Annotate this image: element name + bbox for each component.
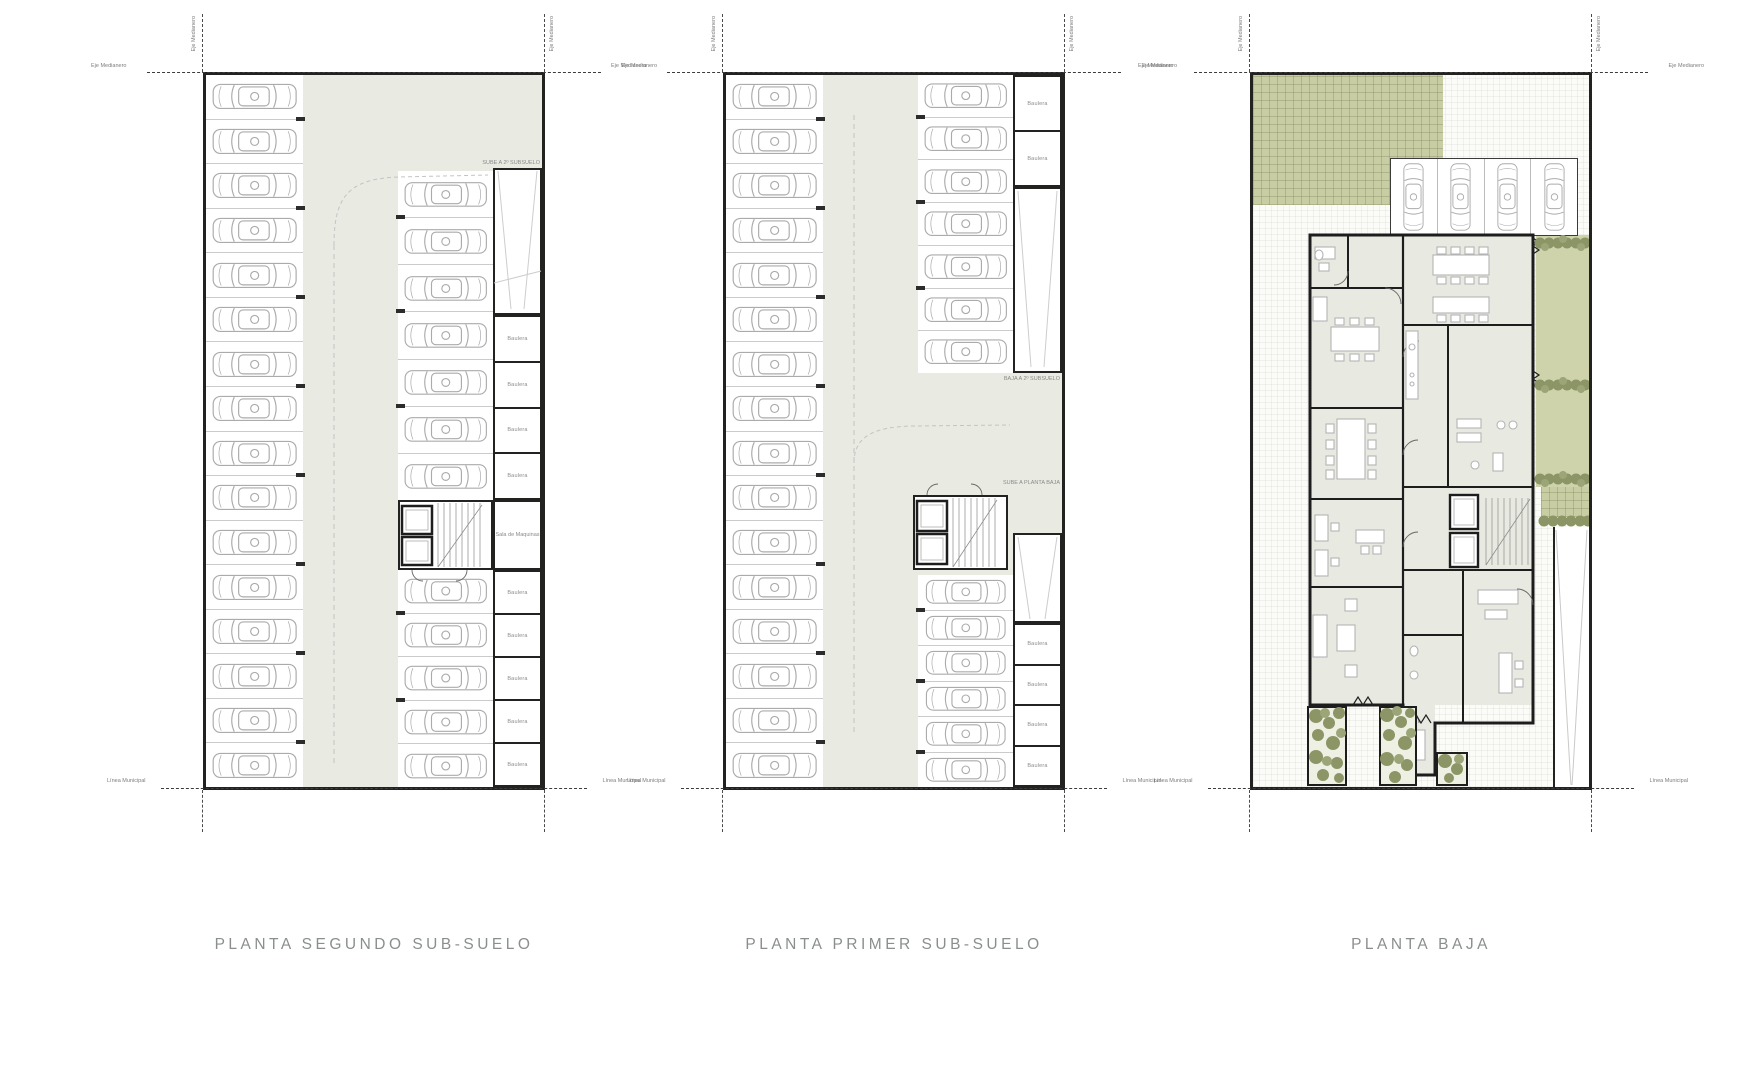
parking-stall (918, 645, 1013, 681)
car-top-view-icon (211, 703, 298, 738)
parking-stall (918, 575, 1013, 610)
drawing-sheet: Eje Medianero Eje Medianero Eje Medianer… (0, 0, 1740, 1080)
municipal-line (681, 788, 1107, 789)
storage-room: Baulera (495, 656, 540, 699)
car-top-view-icon (211, 480, 298, 515)
car-top-view-icon (403, 458, 489, 495)
plan2-elevator-core (913, 495, 1008, 570)
parking-stall (1484, 159, 1531, 235)
parking-stall (726, 75, 823, 119)
municipal-line-label: Línea Municipal (1649, 778, 1688, 784)
car-top-view-icon (403, 364, 489, 401)
parking-stall (206, 297, 303, 342)
plan3-parking-row (1390, 158, 1578, 236)
property-axis-line-right (1064, 14, 1065, 72)
plan1-parking-right-bottom (398, 570, 493, 787)
car-top-view-icon (211, 302, 298, 337)
car-top-view-icon (403, 574, 489, 608)
car-top-view-icon (923, 293, 1009, 326)
plan2-parking-right-bottom (918, 575, 1013, 787)
storage-room: Baulera (495, 407, 540, 453)
car-top-view-icon (211, 213, 298, 248)
parking-stall (206, 386, 303, 431)
municipal-line-label: Línea Municipal (627, 778, 666, 784)
storage-room-label: Baulera (507, 473, 527, 479)
car-top-view-icon (211, 748, 298, 783)
parking-stall (918, 330, 1013, 373)
storage-room: Baulera (495, 317, 540, 361)
car-top-view-icon (923, 207, 1009, 240)
parking-stall (206, 163, 303, 208)
property-axis-line-left (202, 14, 203, 72)
plan-primer-subsuelo: Eje Medianero Eje Medianero Eje Medianer… (723, 72, 1065, 790)
property-axis-label: Eje Medianero (1669, 63, 1704, 69)
parking-stall (918, 159, 1013, 202)
plan1-storage-top: BauleraBauleraBauleraBaulera (493, 315, 542, 500)
storage-room-label: Baulera (1027, 722, 1047, 728)
parking-stall (918, 245, 1013, 288)
parking-stall (398, 453, 493, 500)
parking-stall (726, 119, 823, 164)
car-top-view-icon (923, 79, 1009, 112)
parking-stall (918, 117, 1013, 160)
parking-stall (726, 386, 823, 431)
plan2-storage-bottom: BauleraBauleraBauleraBaulera (1013, 623, 1062, 787)
parking-stall (206, 208, 303, 253)
parking-stall (726, 431, 823, 476)
ramp-up-label: SUBE A 2º SUBSUELO (482, 160, 540, 166)
storage-room-label: Baulera (507, 336, 527, 342)
parking-stall (206, 609, 303, 654)
parking-stall (398, 570, 493, 613)
parking-stall (206, 698, 303, 743)
property-axis-label: Eje Medianero (549, 16, 555, 51)
car-top-view-icon (211, 347, 298, 382)
parking-stall (206, 341, 303, 386)
plan2-parking-left-column (726, 75, 823, 787)
plan2-storage-top: BauleraBaulera (1013, 75, 1062, 187)
parking-stall (206, 431, 303, 476)
parking-stall (398, 656, 493, 700)
car-top-view-icon (923, 165, 1009, 198)
plan2-floor: BauleraBaulera BAJA A 2º SUBSUELO SUBE A… (723, 72, 1065, 790)
parking-stall (726, 653, 823, 698)
plan-segundo-subsuelo: Eje Medianero Eje Medianero Eje Medianer… (203, 72, 545, 790)
property-axis-label: Eje Medianero (1238, 16, 1244, 51)
car-top-view-icon (211, 436, 298, 471)
municipal-tick-right (1064, 790, 1065, 832)
storage-room: Baulera (1015, 130, 1060, 185)
car-top-view-icon (403, 705, 489, 739)
plan3-green-patch (1541, 487, 1589, 517)
property-axis-line-top (667, 72, 1121, 73)
parking-stall (398, 217, 493, 264)
plan1-parking-right-top (398, 171, 493, 500)
car-top-view-icon (211, 525, 298, 560)
municipal-tick-left (722, 790, 723, 832)
municipal-tick-right (1591, 790, 1592, 832)
car-top-view-icon (403, 176, 489, 213)
plan1-machine-room: Sala de Maquinas (493, 500, 542, 570)
parking-stall (918, 681, 1013, 717)
storage-room: Baulera (1015, 625, 1060, 664)
parking-stall (918, 75, 1013, 117)
car-top-view-icon (731, 258, 818, 293)
storage-room-label: Baulera (507, 633, 527, 639)
storage-room: Baulera (495, 452, 540, 498)
parking-stall (918, 288, 1013, 331)
storage-room: Baulera (495, 613, 540, 656)
parking-stall (726, 252, 823, 297)
plan2-ramp-down (1013, 187, 1062, 373)
parking-stall (206, 75, 303, 119)
parking-stall (726, 742, 823, 787)
storage-room-label: Baulera (1027, 763, 1047, 769)
storage-room: Baulera (1015, 745, 1060, 786)
property-axis-label: Eje Medianero (711, 16, 717, 51)
parking-stall (918, 716, 1013, 752)
plan3-lot (1250, 72, 1592, 790)
plan2-parking-right-top (918, 75, 1013, 373)
car-top-view-icon (1397, 162, 1430, 232)
storage-room-label: Baulera (1027, 682, 1047, 688)
car-top-view-icon (1491, 162, 1524, 232)
plan1-elevator-core (398, 500, 493, 570)
municipal-line (1208, 788, 1634, 789)
car-top-view-icon (923, 649, 1009, 677)
parking-stall (726, 475, 823, 520)
car-top-view-icon (923, 578, 1009, 606)
parking-stall (206, 475, 303, 520)
car-top-view-icon (731, 302, 818, 337)
car-top-view-icon (403, 317, 489, 354)
parking-stall (398, 700, 493, 744)
municipal-tick-right (544, 790, 545, 832)
car-top-view-icon (923, 122, 1009, 155)
storage-room: Baulera (495, 742, 540, 785)
property-axis-line-left (1249, 14, 1250, 72)
parking-stall (726, 163, 823, 208)
car-top-view-icon (403, 618, 489, 652)
property-axis-label: Eje Medianero (91, 63, 126, 69)
property-axis-line-left (722, 14, 723, 72)
car-top-view-icon (731, 748, 818, 783)
car-top-view-icon (211, 168, 298, 203)
storage-room-label: Baulera (1027, 641, 1047, 647)
car-top-view-icon (211, 659, 298, 694)
plan1-title: PLANTA SEGUNDO SUB-SUELO (215, 936, 534, 954)
storage-room-label: Baulera (507, 762, 527, 768)
storage-room: Baulera (1015, 704, 1060, 745)
car-top-view-icon (923, 250, 1009, 283)
car-top-view-icon (923, 335, 1009, 368)
plan3-ramp (1553, 527, 1589, 787)
property-axis-label: Eje Medianero (1596, 16, 1602, 51)
car-top-view-icon (211, 614, 298, 649)
parking-stall (918, 202, 1013, 245)
car-top-view-icon (211, 124, 298, 159)
plan3-building-extension (1403, 705, 1435, 775)
parking-stall (206, 119, 303, 164)
parking-stall (918, 752, 1013, 788)
plan-planta-baja: Eje Medianero Eje Medianero Eje Medianer… (1250, 72, 1592, 790)
property-axis-label: Eje Medianero (1069, 16, 1075, 51)
municipal-line (161, 788, 587, 789)
car-top-view-icon (211, 79, 298, 114)
car-top-view-icon (403, 270, 489, 307)
municipal-tick-left (202, 790, 203, 832)
parking-stall (726, 297, 823, 342)
plan1-parking-left-column (206, 75, 303, 787)
car-top-view-icon (731, 480, 818, 515)
parking-stall (726, 520, 823, 565)
car-top-view-icon (923, 720, 1009, 748)
car-top-view-icon (731, 659, 818, 694)
plan1-floor: SUBE A 2º SUBSUELO BauleraBauleraBaulera… (203, 72, 545, 790)
parking-stall (726, 609, 823, 654)
municipal-tick-left (1249, 790, 1250, 832)
municipal-line-label: Línea Municipal (1154, 778, 1193, 784)
municipal-line-label: Línea Municipal (107, 778, 146, 784)
plan3-building-floor (1310, 235, 1533, 705)
parking-stall (1391, 159, 1437, 235)
car-top-view-icon (1538, 162, 1571, 232)
parking-stall (1437, 159, 1484, 235)
storage-room: Baulera (495, 361, 540, 407)
storage-room-label: Baulera (507, 719, 527, 725)
car-top-view-icon (923, 756, 1009, 784)
property-axis-label: Eje Medianero (611, 63, 646, 69)
car-top-view-icon (211, 391, 298, 426)
plan3-side-garden (1536, 235, 1589, 487)
parking-stall (398, 743, 493, 787)
car-top-view-icon (211, 570, 298, 605)
storage-room-label: Baulera (507, 427, 527, 433)
parking-stall (206, 252, 303, 297)
machine-room-label: Sala de Maquinas (495, 532, 539, 538)
ramp-up-label: SUBE A PLANTA BAJA (1003, 480, 1060, 486)
plan1-storage-bottom: BauleraBauleraBauleraBauleraBaulera (493, 570, 542, 787)
property-axis-line-top (1194, 72, 1648, 73)
property-axis-line-right (1591, 14, 1592, 72)
storage-room: Baulera (495, 699, 540, 742)
car-top-view-icon (403, 749, 489, 783)
parking-stall (206, 564, 303, 609)
storage-room-label: Baulera (507, 590, 527, 596)
property-axis-line-top (147, 72, 601, 73)
car-top-view-icon (923, 685, 1009, 713)
storage-room-label: Baulera (1027, 101, 1047, 107)
parking-stall (398, 264, 493, 311)
property-axis-label: Eje Medianero (1138, 63, 1173, 69)
parking-stall (206, 742, 303, 787)
parking-stall (398, 613, 493, 657)
car-top-view-icon (403, 223, 489, 260)
storage-room-label: Baulera (1027, 156, 1047, 162)
parking-stall (726, 564, 823, 609)
car-top-view-icon (731, 124, 818, 159)
parking-stall (206, 653, 303, 698)
storage-room: Baulera (495, 572, 540, 613)
car-top-view-icon (731, 436, 818, 471)
car-top-view-icon (923, 614, 1009, 642)
storage-room: Baulera (1015, 77, 1060, 130)
plan3-title: PLANTA BAJA (1351, 936, 1491, 954)
parking-stall (726, 208, 823, 253)
plan1-ramp (493, 168, 542, 315)
storage-room-label: Baulera (507, 382, 527, 388)
car-top-view-icon (403, 661, 489, 695)
parking-stall (398, 311, 493, 358)
parking-stall (398, 406, 493, 453)
car-top-view-icon (731, 703, 818, 738)
storage-room: Baulera (1015, 664, 1060, 705)
ramp-down-label: BAJA A 2º SUBSUELO (1004, 376, 1060, 382)
property-axis-line-right (544, 14, 545, 72)
car-top-view-icon (731, 614, 818, 649)
car-top-view-icon (731, 347, 818, 382)
car-top-view-icon (731, 168, 818, 203)
car-top-view-icon (731, 391, 818, 426)
car-top-view-icon (403, 411, 489, 448)
parking-stall (726, 698, 823, 743)
parking-stall (398, 359, 493, 406)
car-top-view-icon (731, 570, 818, 605)
parking-stall (398, 171, 493, 217)
parking-stall (918, 610, 1013, 646)
car-top-view-icon (1444, 162, 1477, 232)
parking-stall (206, 520, 303, 565)
storage-room-label: Baulera (507, 676, 527, 682)
property-axis-label: Eje Medianero (191, 16, 197, 51)
plan2-title: PLANTA PRIMER SUB-SUELO (745, 936, 1042, 954)
plan2-ramp-lower (1013, 533, 1062, 623)
parking-stall (1530, 159, 1577, 235)
car-top-view-icon (731, 525, 818, 560)
car-top-view-icon (731, 79, 818, 114)
parking-stall (726, 341, 823, 386)
car-top-view-icon (731, 213, 818, 248)
car-top-view-icon (211, 258, 298, 293)
